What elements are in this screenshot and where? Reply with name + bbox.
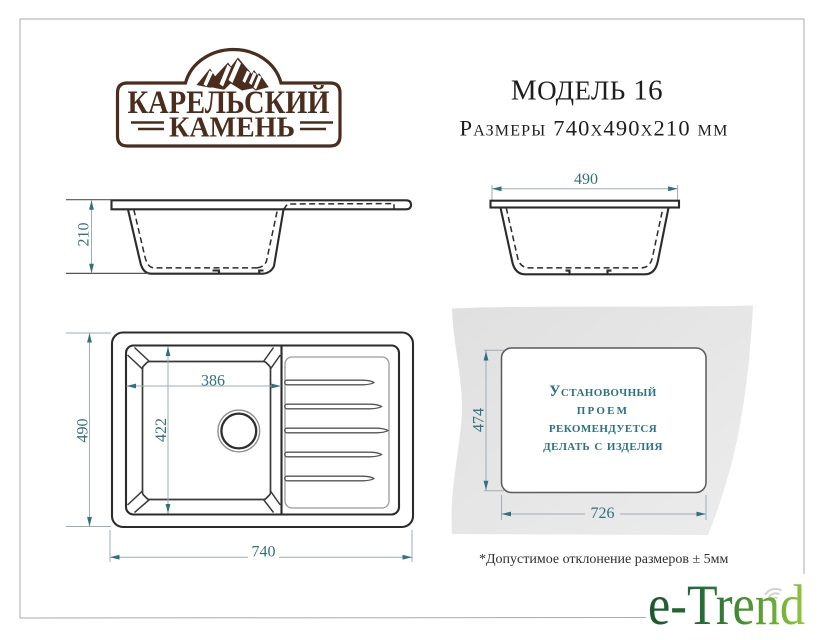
svg-text:474: 474	[471, 408, 488, 432]
svg-text:КАМЕНЬ: КАМЕНЬ	[169, 113, 295, 144]
svg-text:e-Trend: e-Trend	[648, 574, 805, 637]
svg-text:386: 386	[201, 373, 225, 390]
svg-text:проем: проем	[577, 401, 630, 418]
svg-text:490: 490	[75, 419, 92, 443]
svg-text:740: 740	[252, 544, 276, 561]
svg-text:МОДЕЛЬ 16: МОДЕЛЬ 16	[511, 75, 663, 107]
svg-text:210: 210	[76, 223, 93, 247]
svg-text:делать с изделия: делать с изделия	[543, 437, 663, 454]
svg-text:Размеры 740х490х210 мм: Размеры 740х490х210 мм	[460, 116, 729, 141]
svg-text:рекомендуется: рекомендуется	[549, 419, 657, 436]
svg-text:726: 726	[591, 505, 615, 522]
svg-text:490: 490	[574, 171, 598, 188]
svg-text:422: 422	[153, 418, 170, 442]
svg-text:Установочный: Установочный	[549, 383, 656, 400]
svg-text:*Допустимое отклонение размеро: *Допустимое отклонение размеров ± 5мм	[479, 552, 729, 567]
